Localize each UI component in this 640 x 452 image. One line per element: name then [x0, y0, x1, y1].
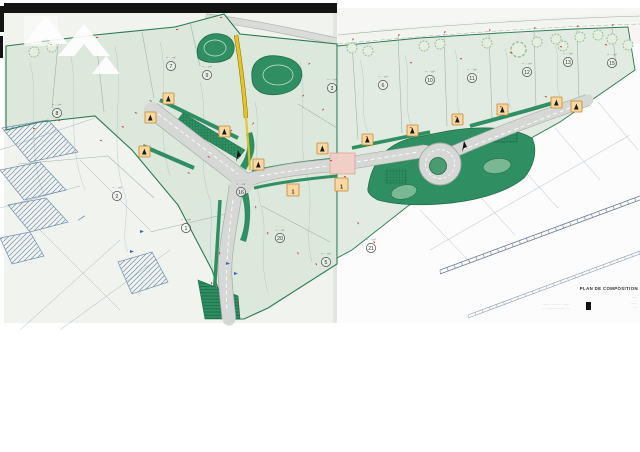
lot-label-7: 7 ≈ ··· m² [166, 56, 175, 71]
svg-text:≈ ··· m²: ≈ ··· m² [166, 56, 175, 60]
marker-number: 1 [340, 185, 343, 191]
svg-text:20: 20 [277, 236, 283, 242]
lot-label-11: 11 ≈ ··· m² [467, 68, 476, 83]
lot-label-3: 3 ≈ ··· m² [327, 78, 336, 93]
svg-text:≈ ··· m²: ≈ ··· m² [52, 103, 61, 107]
svg-text:10: 10 [427, 78, 433, 84]
stamp-logo [586, 302, 591, 310]
lot-label-9: 9 ≈ ··· m² [202, 65, 211, 80]
crossing-plateau [330, 153, 355, 174]
svg-text:8: 8 [56, 111, 59, 117]
svg-text:≈ ··· m²: ≈ ··· m² [522, 62, 531, 66]
svg-text:≈ ··· m²: ≈ ··· m² [467, 68, 476, 72]
svg-text:15: 15 [609, 61, 615, 67]
svg-text:≈ ··· m²: ≈ ··· m² [276, 229, 285, 232]
lot-label-1: 1 ≈ ··· m² [181, 218, 190, 233]
roundabout [419, 143, 461, 185]
svg-text:21: 21 [368, 246, 374, 252]
svg-text:≈ ··· m²: ≈ ··· m² [327, 78, 336, 82]
lot-label-6: 6 ≈ ··· m² [378, 75, 387, 90]
lot-label-21: 21 ≈ ··· m² [366, 238, 375, 253]
svg-text:9: 9 [206, 73, 209, 79]
svg-text:≈ ··· m²: ≈ ··· m² [237, 183, 246, 186]
svg-text:5: 5 [325, 260, 328, 266]
margin-note: ········· [630, 302, 638, 305]
svg-text:12: 12 [524, 70, 530, 76]
margin-note: ······ [633, 306, 638, 309]
margin-note: ······· [632, 296, 638, 299]
lot-label-10: 10 ≈ ··· m² [425, 70, 434, 85]
svg-text:≈ ··· m²: ≈ ··· m² [321, 252, 330, 256]
svg-text:2: 2 [116, 194, 119, 200]
plan-title-text: PLAN DE COMPOSITION [580, 286, 638, 291]
svg-text:≈ ··· m²: ≈ ··· m² [607, 53, 616, 57]
site-plan-drawing: ·· ······ ·· ···· ·· [0, 0, 640, 452]
marker-number: 1 [292, 190, 295, 196]
lot-label-2: 2 ≈ ··· m² [112, 186, 121, 201]
svg-text:1: 1 [185, 226, 188, 232]
scan-edge-bar [4, 3, 337, 13]
svg-text:≈ ··· m²: ≈ ··· m² [563, 52, 572, 56]
pond [252, 56, 302, 95]
svg-text:≈ ··· m²: ≈ ··· m² [378, 75, 387, 79]
lot-label-13: 13 ≈ ··· m² [563, 52, 572, 67]
lot-label-8: 8 ≈ ··· m² [52, 103, 61, 118]
lot-label-15: 15 ≈ ··· m² [607, 53, 616, 68]
svg-text:6: 6 [382, 83, 385, 89]
svg-text:7: 7 [170, 64, 173, 70]
svg-text:11: 11 [469, 76, 474, 82]
svg-text:≈ ··· m²: ≈ ··· m² [112, 186, 121, 190]
stamp-text-line: ········ ·· ······· · ········ [543, 303, 569, 306]
scanned-plan-page: ·· ······ ·· ···· ·· [0, 0, 640, 452]
lot-label-12: 12 ≈ ··· m² [522, 62, 531, 77]
svg-text:≈ ··· m²: ≈ ··· m² [202, 65, 211, 69]
lot-label-5: 5 ≈ ··· m² [321, 252, 330, 267]
svg-text:≈ ··· m²: ≈ ··· m² [181, 218, 190, 222]
svg-text:16: 16 [238, 190, 244, 196]
svg-text:≈ ··· m²: ≈ ··· m² [366, 238, 375, 242]
stamp-text-line: ··· ···· ········ ·· ···· ····· [542, 307, 569, 310]
svg-text:≈ ··· m²: ≈ ··· m² [425, 70, 434, 74]
svg-text:13: 13 [565, 60, 571, 66]
svg-text:3: 3 [331, 86, 334, 92]
